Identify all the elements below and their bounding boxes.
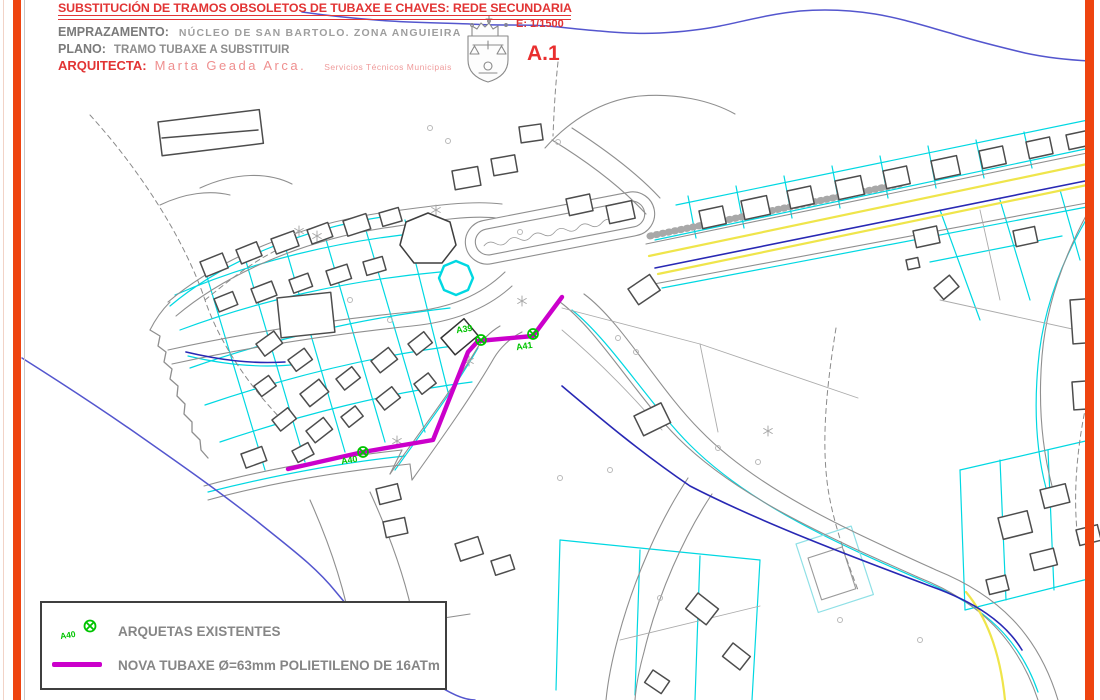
page-edge-line [3,0,4,700]
title-underline [58,15,571,20]
scale-label: E: 1/1500 [516,18,564,30]
site-plan-map [0,0,1100,700]
plano-label: PLANO: [58,42,106,56]
frame-bar-left [13,0,21,700]
inner-frame-hairline [24,0,25,700]
arquitecta-note: Servicios Técnicos Municipais [324,62,452,72]
frame-bar-right [1085,0,1094,700]
boundary-blue-lines [22,10,1090,700]
plan-sheet: A39 A41 A40 SUBSTITUCIÓN DE TRAMOS OBSOL… [0,0,1100,700]
municipal-crest-icon [468,16,508,82]
arquetas-legend-label: ARQUETAS EXISTENTES [118,624,281,639]
legend-box: A40 ARQUETAS EXISTENTES NOVA TUBAXE Ø=63… [40,601,447,690]
emprazamento-value: NÚCLEO DE SAN BARTOLO. ZONA ANGUIEIRA [179,27,462,39]
arqueta-icon [76,617,102,643]
tubaxe-legend-label: NOVA TUBAXE Ø=63mm POLIETILENO DE 16ATm [118,658,440,673]
arqueta-legend-symbol: A40 [42,617,114,645]
new-pipe-swatch [52,662,102,667]
drawing-title: SUBSTITUCIÓN DE TRAMOS OBSOLETOS DE TUBA… [58,1,572,15]
plano-value: TRAMO TUBAXE A SUBSTITUIR [114,44,289,56]
arquitecta-label: ARQUITECTA: [58,58,147,73]
arqueta-legend-symbol-label: A40 [59,629,76,641]
sheet-number: A.1 [527,42,560,66]
emprazamento-label: EMPRAZAMENTO: [58,25,169,39]
pipe-legend-symbol [42,651,114,679]
arquitecta-value: Marta Geada Arca. [155,58,307,73]
